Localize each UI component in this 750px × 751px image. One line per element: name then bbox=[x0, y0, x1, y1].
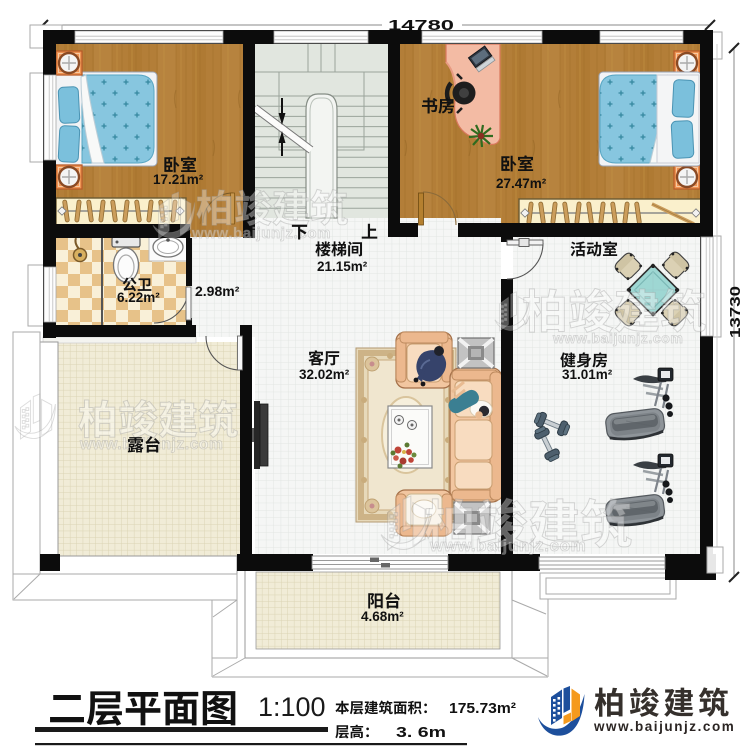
svg-text:175.73m²: 175.73m² bbox=[449, 700, 516, 717]
svg-text:21.15m²: 21.15m² bbox=[317, 259, 368, 274]
svg-text:13730: 13730 bbox=[727, 286, 744, 338]
svg-text:17.21m²: 17.21m² bbox=[153, 172, 204, 187]
svg-text:www.baijunjz.com: www.baijunjz.com bbox=[429, 536, 586, 555]
svg-text:2.98m²: 2.98m² bbox=[195, 283, 240, 299]
svg-text:www.baijunjz.com: www.baijunjz.com bbox=[191, 225, 331, 242]
svg-text:www.baijunjz.com: www.baijunjz.com bbox=[552, 330, 683, 346]
svg-text:6.22m²: 6.22m² bbox=[117, 290, 160, 305]
svg-text:3. 6m: 3. 6m bbox=[396, 724, 446, 741]
svg-text:27.47m²: 27.47m² bbox=[496, 176, 547, 191]
svg-text:1:100: 1:100 bbox=[258, 692, 326, 722]
svg-text:31.01m²: 31.01m² bbox=[562, 367, 613, 382]
svg-text:4.68m²: 4.68m² bbox=[361, 609, 404, 624]
svg-text:www.baijunjz.com: www.baijunjz.com bbox=[593, 719, 735, 734]
svg-text:32.02m²: 32.02m² bbox=[299, 367, 350, 382]
